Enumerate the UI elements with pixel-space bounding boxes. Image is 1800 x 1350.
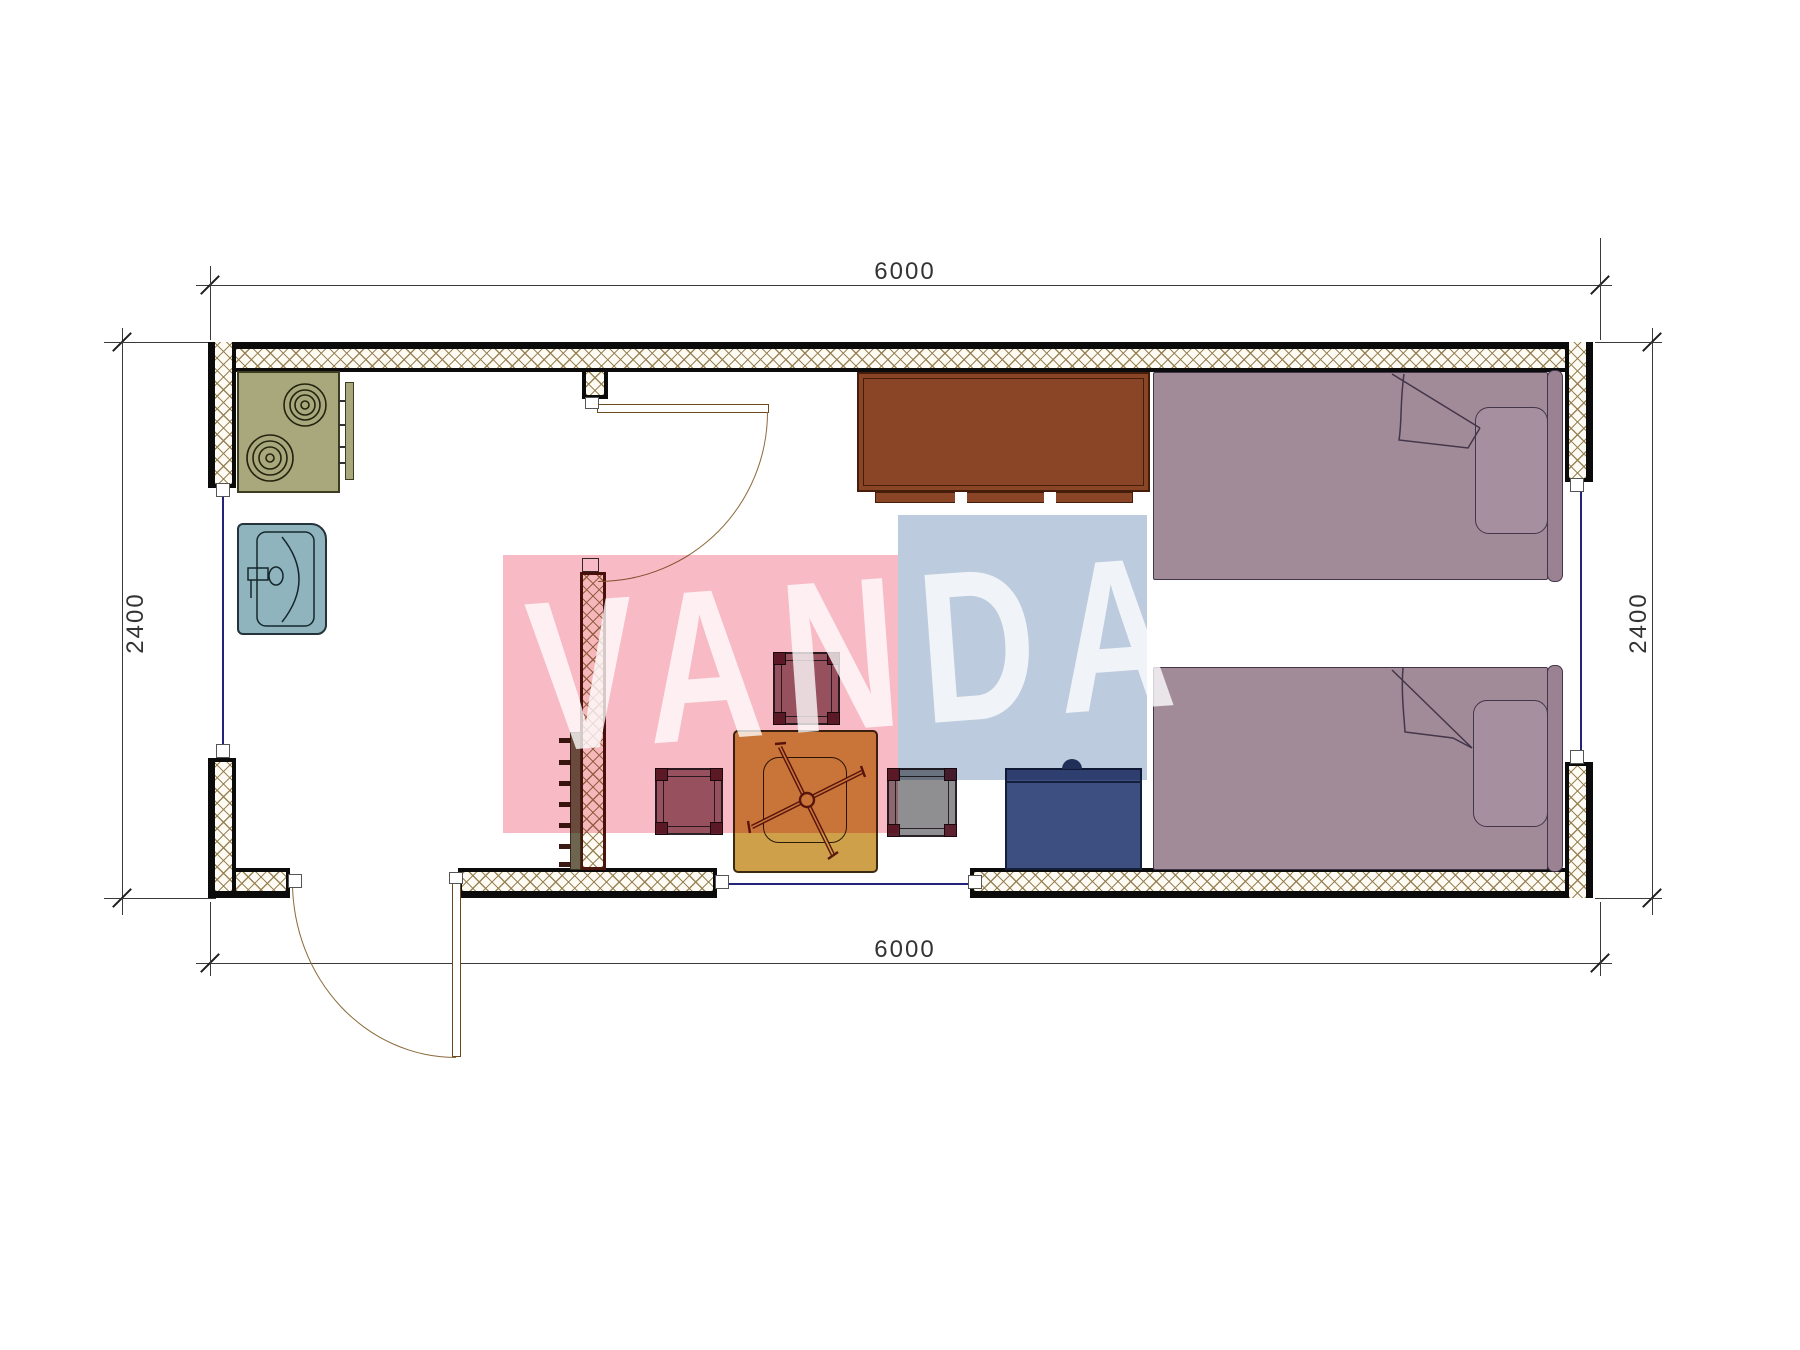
window-jamb — [1570, 750, 1584, 764]
door-jamb — [288, 874, 302, 888]
dim-ext — [1600, 902, 1601, 976]
washing-machine — [1005, 768, 1142, 870]
cabinet-base — [875, 492, 1133, 503]
floor-plan-canvas: 6000 6000 2400 2400 — [0, 0, 1800, 1350]
wall-bottom-right — [970, 868, 1593, 898]
bed-top-blanket-fold — [1153, 372, 1548, 580]
wall-right-upper — [1565, 342, 1593, 482]
cabinet-base-gap — [1044, 492, 1056, 504]
cabinet — [857, 372, 1150, 492]
stove-burners — [237, 371, 340, 493]
window-jamb — [968, 875, 982, 889]
stool-leg — [944, 824, 957, 837]
wall-right-lower — [1565, 762, 1593, 898]
window-jamb — [715, 875, 729, 889]
window-bottom — [727, 883, 970, 885]
rail-tick — [338, 424, 345, 426]
stove-side-rail — [345, 382, 354, 480]
door-jamb — [585, 397, 599, 409]
dim-ext — [1595, 898, 1662, 899]
bed-top-headboard — [1547, 370, 1563, 582]
wall-bottom-left-foot — [236, 868, 290, 898]
rail-tick — [338, 446, 345, 448]
rail-tick — [338, 400, 345, 402]
shelf-hook — [559, 844, 571, 849]
dim-label-right: 2400 — [1625, 563, 1653, 683]
dim-ext — [1595, 342, 1662, 343]
dim-label-left: 2400 — [122, 563, 150, 683]
wall-bottom-middle — [458, 868, 717, 898]
dim-ext — [210, 266, 211, 340]
shelf-hook — [559, 862, 571, 867]
watermark-text: VANDA — [521, 522, 1201, 785]
cabinet-base-gap — [955, 492, 967, 504]
bed-bottom-headboard — [1547, 665, 1563, 872]
wall-top — [208, 342, 1593, 372]
wall-left-lower — [208, 758, 236, 898]
dim-ext — [104, 342, 216, 343]
dim-ext — [210, 902, 211, 976]
sink-details — [237, 523, 327, 635]
rail-tick — [338, 462, 345, 464]
cabinet-inner-line — [863, 378, 1144, 486]
door-jamb — [449, 872, 463, 884]
entrance-door-swing-arc — [292, 882, 456, 1058]
dim-ext — [1600, 238, 1601, 340]
stool-inner-edge — [895, 776, 949, 829]
window-right — [1580, 492, 1582, 752]
window-jamb — [216, 744, 230, 758]
dim-label-top: 6000 — [845, 258, 965, 286]
window-jamb — [1570, 478, 1584, 492]
dim-ext — [104, 898, 216, 899]
washer-lid-line — [1007, 781, 1140, 783]
wall-door-stub — [582, 372, 608, 399]
window-left — [222, 497, 224, 746]
window-jamb — [216, 483, 230, 497]
bed-bottom-blanket-fold — [1153, 667, 1548, 870]
wall-left-upper — [208, 342, 236, 488]
dim-label-bottom: 6000 — [845, 936, 965, 964]
